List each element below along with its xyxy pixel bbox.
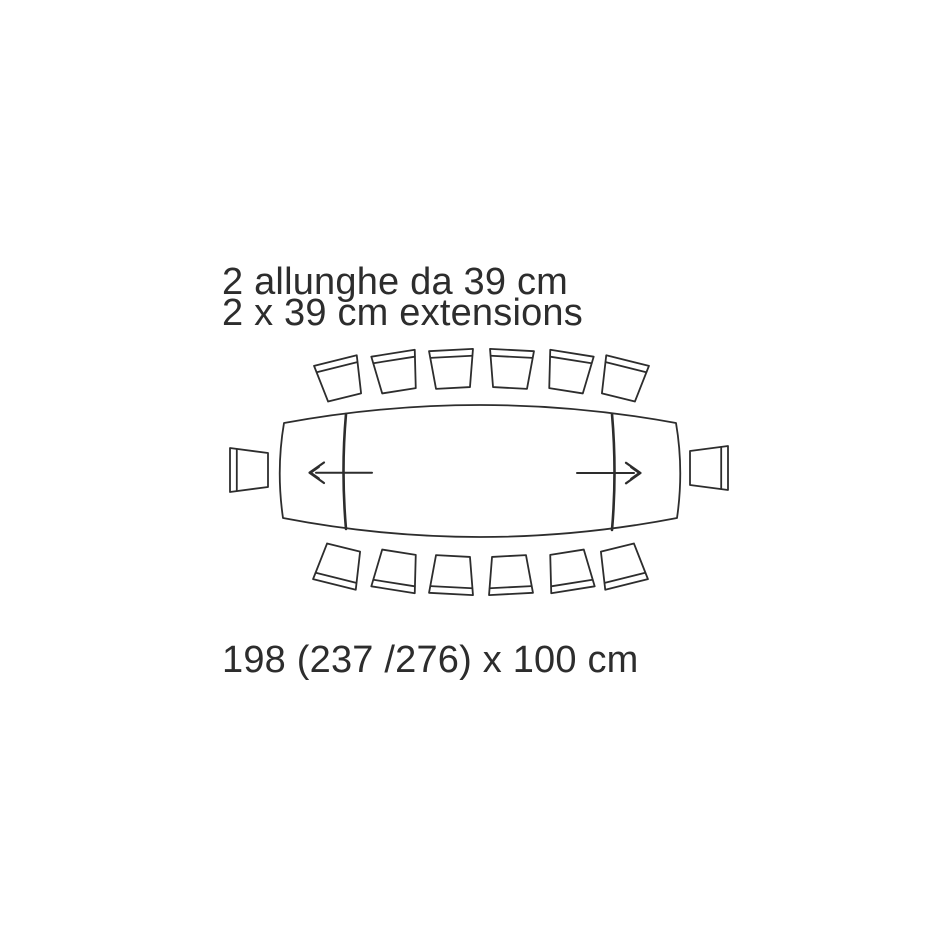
caption-dimensions: 198 (237 /276) x 100 cm — [222, 641, 639, 679]
chair-top-6 — [597, 355, 649, 403]
chair-bottom-5 — [545, 549, 594, 593]
chair-top-3 — [429, 349, 475, 389]
chair-top-1 — [314, 355, 366, 403]
chair-bottom-3 — [429, 555, 475, 595]
extend-arrow-left-icon — [310, 463, 373, 484]
chair-top-4 — [488, 349, 534, 389]
chair-left-end — [230, 448, 268, 492]
chair-bottom-4 — [487, 555, 533, 595]
chair-bottom-2 — [371, 549, 420, 593]
diagram-canvas: 2 allunghe da 39 cm 2 x 39 cm extensions — [0, 0, 950, 950]
chair-top-5 — [544, 350, 593, 394]
chair-right-end — [690, 446, 728, 490]
extend-arrow-right-icon — [577, 463, 641, 484]
table-top-outline — [280, 405, 681, 537]
chair-bottom-6 — [596, 542, 648, 590]
table-diagram — [0, 0, 950, 950]
extension-line-left — [344, 414, 347, 529]
chair-bottom-1 — [313, 542, 365, 590]
chair-top-2 — [371, 350, 420, 394]
